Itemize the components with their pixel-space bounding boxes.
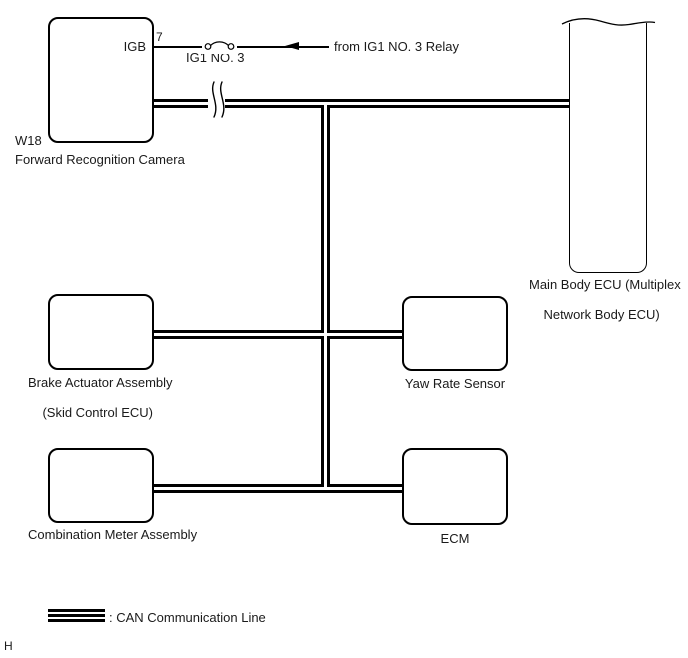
can-trunk-line [321, 101, 330, 491]
fuse-icon [202, 39, 237, 54]
terminal-pin-number: 7 [156, 30, 163, 44]
junction-bottom-tee [324, 484, 327, 487]
main-body-ecu-label: Main Body ECU (Multiplex Network Body EC… [529, 277, 681, 337]
node-brake-actuator [48, 294, 154, 370]
brake-actuator-label: Brake Actuator Assembly (Skid Control EC… [28, 375, 173, 435]
arrow-left-icon [285, 42, 299, 50]
node-ecm [402, 448, 508, 525]
yaw-rate-sensor-label: Yaw Rate Sensor [402, 376, 508, 391]
brake-actuator-label-line2: (Skid Control ECU) [42, 405, 153, 420]
terminal-name-label: IGB [124, 39, 146, 54]
wiring-diagram: IG1 NO. 3 from IG1 NO. 3 Relay 7 IGB W18… [0, 0, 688, 658]
ecm-label: ECM [402, 531, 508, 546]
node-combination-meter [48, 448, 154, 523]
main-body-ecu-label-line1: Main Body ECU (Multiplex [529, 277, 681, 292]
node-main-body-ecu [569, 23, 647, 273]
brake-actuator-label-line1: Brake Actuator Assembly [28, 375, 173, 390]
wire-break-icon [205, 80, 229, 119]
node-forward-recognition-camera: IGB [48, 17, 154, 143]
node-yaw-rate-sensor [402, 296, 508, 371]
torn-edge-icon [561, 15, 656, 30]
combination-meter-label: Combination Meter Assembly [28, 527, 197, 542]
can-line-meter-to-ecm [152, 484, 404, 493]
junction-middle-cross [324, 330, 327, 339]
can-line-brake-to-yaw [152, 330, 404, 339]
main-body-ecu-label-line2: Network Body ECU) [543, 307, 659, 322]
legend-label: : CAN Communication Line [109, 610, 266, 625]
power-source-label: from IG1 NO. 3 Relay [334, 39, 459, 54]
footer-letter: H [4, 639, 13, 653]
can-line-legend-swatch [48, 609, 105, 622]
camera-code-label: W18 [15, 133, 42, 148]
junction-top-tee [324, 105, 327, 108]
camera-name-label: Forward Recognition Camera [15, 152, 185, 167]
power-feed-wire [152, 46, 329, 48]
